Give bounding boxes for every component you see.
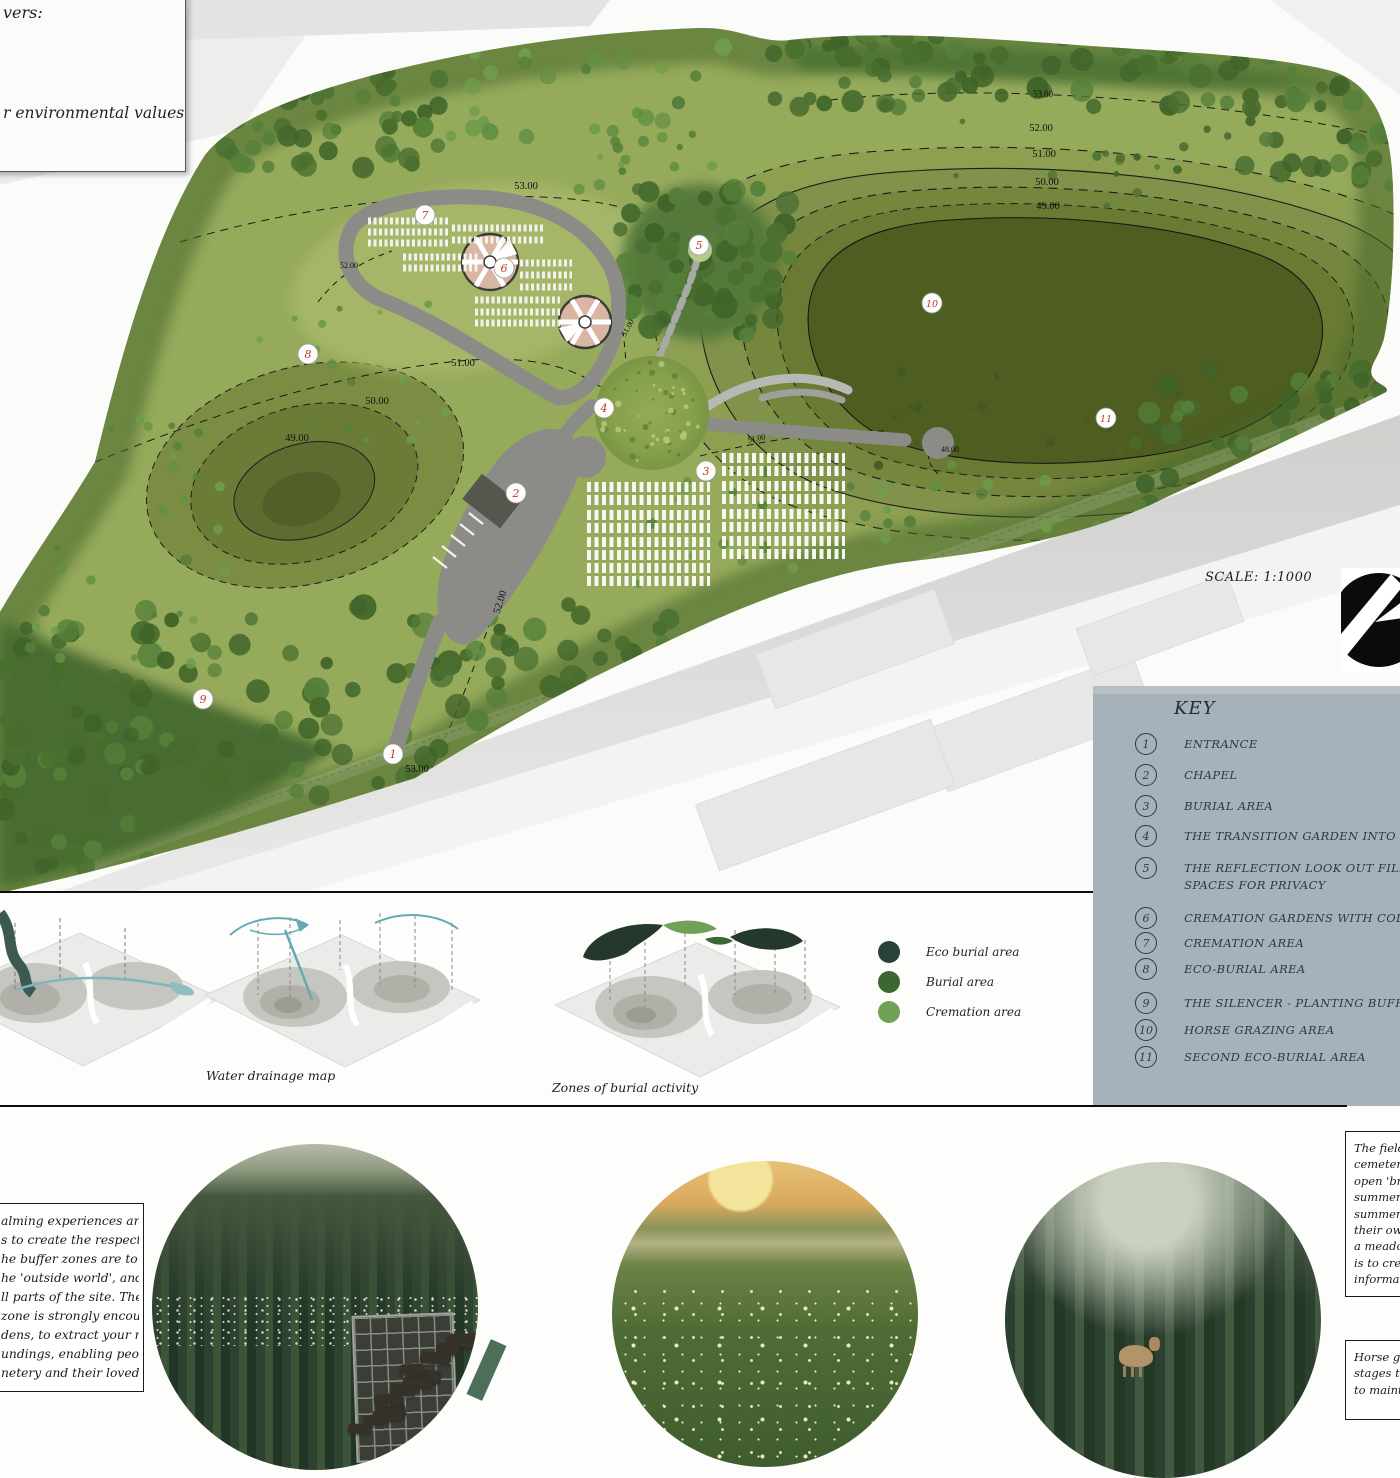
tree bbox=[668, 188, 685, 205]
tree bbox=[1156, 375, 1177, 396]
tree bbox=[173, 441, 182, 450]
tree bbox=[860, 510, 871, 521]
key-item-number: 10 bbox=[1135, 1019, 1157, 1041]
tree bbox=[309, 697, 330, 718]
tree bbox=[1137, 54, 1158, 75]
tree bbox=[589, 124, 600, 135]
tree bbox=[245, 612, 258, 625]
tree bbox=[445, 694, 470, 719]
tree bbox=[1070, 79, 1093, 102]
tree bbox=[1129, 437, 1141, 449]
tree bbox=[135, 600, 157, 622]
tree bbox=[151, 612, 157, 618]
tree bbox=[1242, 88, 1259, 105]
key-item: 6 CREMATION GARDENS WITH COLUMBAR bbox=[1135, 907, 1400, 929]
zones-legend: Eco burial area Burial area Cremation ar… bbox=[878, 941, 1021, 1031]
tree bbox=[220, 566, 230, 576]
tree bbox=[1203, 126, 1210, 133]
tree bbox=[1353, 372, 1369, 388]
tree bbox=[15, 832, 28, 845]
tree bbox=[1224, 132, 1231, 139]
tree bbox=[139, 623, 160, 644]
tree bbox=[352, 157, 374, 179]
text-fragment: a meadow bbox=[1354, 1238, 1400, 1254]
garden-dot bbox=[625, 378, 628, 381]
divider-line-bottom bbox=[0, 1105, 1347, 1107]
contour-label: 48.00 bbox=[941, 445, 959, 454]
tree bbox=[1320, 404, 1335, 419]
garden-dot bbox=[638, 456, 640, 458]
key-panel: KEY 1 ENTRANCE 2 CHAPEL bbox=[1093, 686, 1400, 1106]
tree bbox=[1316, 82, 1328, 94]
tree bbox=[1235, 156, 1254, 175]
key-item-number: 3 bbox=[1135, 795, 1157, 817]
tree bbox=[464, 78, 481, 95]
tree bbox=[56, 563, 66, 573]
marker-number: 6 bbox=[501, 262, 508, 275]
tree bbox=[259, 724, 279, 744]
marker-number: 11 bbox=[1100, 414, 1112, 425]
text-fragment: their own bbox=[1354, 1222, 1400, 1238]
tree bbox=[657, 132, 668, 143]
tree bbox=[53, 767, 67, 781]
tree bbox=[282, 645, 299, 662]
tree bbox=[884, 481, 891, 488]
tree bbox=[613, 143, 624, 154]
diagram-water-drainage-axon bbox=[190, 895, 490, 1080]
garden-dot bbox=[672, 373, 678, 379]
tree bbox=[485, 657, 506, 678]
tree bbox=[973, 52, 985, 64]
garden-dot bbox=[643, 424, 649, 430]
tree bbox=[1133, 188, 1143, 198]
marker-number: 3 bbox=[703, 465, 710, 478]
tree bbox=[655, 60, 669, 74]
tree bbox=[945, 40, 964, 59]
tree bbox=[56, 619, 79, 642]
tree bbox=[822, 40, 834, 52]
tree bbox=[966, 518, 973, 525]
tree bbox=[131, 654, 138, 661]
key-item-number: 1 bbox=[1135, 733, 1157, 755]
garden-dot bbox=[667, 431, 669, 433]
tree bbox=[466, 641, 486, 661]
tree bbox=[1039, 475, 1051, 487]
tree bbox=[51, 627, 59, 635]
tree bbox=[371, 776, 385, 790]
tree bbox=[847, 483, 855, 491]
text-fragment: summer se bbox=[1354, 1189, 1400, 1205]
tree bbox=[652, 621, 667, 636]
tree bbox=[874, 461, 883, 470]
key-item-label: HORSE GRAZING AREA bbox=[1184, 1019, 1335, 1037]
tree bbox=[960, 119, 966, 125]
tree bbox=[632, 183, 644, 195]
text-fragment: undings, enabling people bbox=[1, 1345, 139, 1364]
tree bbox=[194, 428, 203, 437]
key-item: 10 HORSE GRAZING AREA bbox=[1135, 1019, 1335, 1041]
map-marker: 4 bbox=[594, 398, 614, 418]
key-item-label: THE REFLECTION LOOK OUT FILLED WIT SPACE… bbox=[1184, 857, 1400, 892]
key-item-number: 5 bbox=[1135, 857, 1157, 879]
tree bbox=[309, 785, 330, 806]
tree bbox=[486, 687, 507, 708]
tree bbox=[319, 142, 338, 161]
tree bbox=[20, 622, 33, 635]
contour-label: 52.00 bbox=[1029, 123, 1053, 134]
text-fragment: he buffer zones are to bbox=[1, 1250, 139, 1269]
tree bbox=[618, 167, 626, 175]
tree bbox=[1290, 372, 1309, 391]
garden-dot bbox=[666, 439, 670, 443]
garden-dot bbox=[649, 370, 655, 376]
tree bbox=[803, 92, 816, 105]
marker-number: 7 bbox=[422, 209, 429, 222]
tree bbox=[976, 488, 988, 500]
tree bbox=[430, 70, 448, 88]
garden-dot bbox=[665, 412, 667, 414]
key-item-line1: BURIAL AREA bbox=[1184, 799, 1273, 813]
legend-color-dot bbox=[878, 1001, 900, 1023]
legend-row: Eco burial area bbox=[878, 941, 1021, 963]
contour-label: 51.00 bbox=[1032, 149, 1056, 160]
tree bbox=[876, 94, 895, 113]
tree bbox=[1259, 132, 1274, 147]
tree bbox=[1188, 64, 1212, 88]
tree bbox=[406, 435, 415, 444]
tree bbox=[167, 740, 190, 763]
tree bbox=[1116, 153, 1125, 162]
tree bbox=[1042, 56, 1061, 75]
tree bbox=[689, 131, 696, 138]
tree bbox=[375, 136, 397, 158]
legend-label: Burial area bbox=[926, 975, 994, 989]
caption-water-drainage: Water drainage map bbox=[206, 1068, 335, 1083]
tree bbox=[378, 310, 383, 315]
grave-stone bbox=[400, 1364, 424, 1376]
tree bbox=[990, 46, 1008, 64]
key-item-number: 11 bbox=[1135, 1046, 1157, 1068]
tree bbox=[469, 106, 480, 117]
marker-number: 10 bbox=[926, 299, 938, 310]
tree bbox=[1181, 401, 1194, 414]
text-fragment: he 'outside world', and bbox=[1, 1269, 139, 1288]
tree bbox=[465, 120, 482, 137]
tree bbox=[274, 118, 292, 136]
garden-dot bbox=[637, 371, 641, 375]
marker-number: 5 bbox=[696, 239, 703, 252]
legend-label: Eco burial area bbox=[926, 945, 1019, 959]
key-title: KEY bbox=[1174, 698, 1215, 719]
tree bbox=[765, 45, 782, 62]
tree bbox=[275, 711, 293, 729]
tree bbox=[1065, 387, 1072, 394]
tree bbox=[430, 664, 454, 688]
tree bbox=[690, 71, 701, 82]
tree bbox=[313, 425, 319, 431]
tree bbox=[208, 663, 222, 677]
garden-dot bbox=[679, 430, 681, 432]
tree bbox=[213, 525, 223, 535]
garden-dot bbox=[680, 433, 687, 440]
contour-label: 53.00 bbox=[405, 764, 429, 775]
tree bbox=[724, 220, 750, 246]
tree bbox=[723, 179, 746, 202]
presentation-board: 53.0052.0051.0050.0049.0052.0053.0053.00… bbox=[0, 0, 1400, 1400]
tree bbox=[345, 682, 361, 698]
tree bbox=[483, 123, 493, 133]
tree bbox=[337, 306, 343, 312]
tree bbox=[644, 223, 664, 243]
tree bbox=[897, 368, 907, 378]
garden-dot bbox=[696, 425, 700, 429]
tree bbox=[441, 407, 450, 416]
tree bbox=[1116, 449, 1125, 458]
caption-burial-zones: Zones of burial activity bbox=[552, 1080, 698, 1095]
tree bbox=[728, 269, 744, 285]
tree bbox=[382, 119, 398, 135]
tree bbox=[133, 680, 147, 694]
tree bbox=[677, 144, 683, 150]
tree bbox=[593, 651, 608, 666]
intro-fragment-2: r environmental values bbox=[3, 104, 179, 122]
map-marker: 11 bbox=[1096, 408, 1116, 428]
tree bbox=[51, 834, 67, 850]
tree bbox=[157, 651, 175, 669]
divider-line-top bbox=[0, 891, 1093, 893]
text-fragment: to maintai bbox=[1354, 1382, 1400, 1398]
tree bbox=[698, 191, 712, 205]
text-fragment: ll parts of the site. The bbox=[1, 1288, 139, 1307]
tree bbox=[54, 545, 61, 552]
key-item-number: 9 bbox=[1135, 992, 1157, 1014]
tree bbox=[347, 378, 355, 386]
text-fragment: cemetery, bbox=[1354, 1156, 1400, 1172]
tree bbox=[64, 734, 81, 751]
garden-dot bbox=[636, 459, 639, 462]
tree bbox=[655, 113, 671, 129]
tree bbox=[288, 761, 305, 778]
tree bbox=[912, 89, 925, 102]
tree bbox=[1301, 156, 1322, 177]
tree bbox=[483, 65, 498, 80]
garden-dot bbox=[682, 392, 685, 395]
key-item-line1: HORSE GRAZING AREA bbox=[1184, 1023, 1335, 1037]
garden-dot bbox=[648, 360, 652, 364]
tree bbox=[762, 308, 783, 329]
tree bbox=[229, 634, 251, 656]
tree bbox=[246, 679, 270, 703]
tree bbox=[231, 154, 250, 173]
tree bbox=[34, 858, 50, 874]
tree bbox=[215, 482, 225, 492]
key-item-line1: CREMATION GARDENS WITH COLUMBAR bbox=[1184, 911, 1400, 925]
tree bbox=[519, 129, 534, 144]
tree bbox=[971, 64, 994, 87]
tree bbox=[262, 161, 274, 173]
text-fragment: summer w bbox=[1354, 1206, 1400, 1222]
key-item: 1 ENTRANCE bbox=[1135, 733, 1258, 755]
tree bbox=[983, 479, 993, 489]
garden-dot bbox=[650, 442, 654, 446]
tree bbox=[1133, 153, 1140, 160]
contour-label: 53.00 bbox=[1033, 89, 1054, 99]
text-fragment: s to create the respectful bbox=[1, 1231, 139, 1250]
garden-dot bbox=[659, 361, 665, 367]
contour-label: 49.00 bbox=[285, 433, 309, 444]
garden-dot bbox=[686, 422, 691, 427]
tree bbox=[316, 110, 327, 121]
key-item-number: 2 bbox=[1135, 764, 1157, 786]
tree bbox=[750, 181, 766, 197]
marker-number: 1 bbox=[390, 748, 397, 761]
garden-dot bbox=[615, 427, 621, 433]
tree bbox=[314, 739, 331, 756]
text-fragment: dens, to extract your mind bbox=[1, 1326, 139, 1345]
tree bbox=[169, 454, 176, 461]
contour-label: 50.00 bbox=[365, 396, 389, 407]
tree bbox=[55, 653, 65, 663]
tree bbox=[106, 721, 119, 734]
diagram-burial-zones-axon bbox=[535, 895, 855, 1095]
photo-horse-in-forest bbox=[1005, 1162, 1321, 1478]
key-item: 9 THE SILENCER - PLANTING BUFFER bbox=[1135, 992, 1400, 1014]
key-item-line2: SPACES FOR PRIVACY bbox=[1184, 878, 1400, 892]
key-item-line1: THE REFLECTION LOOK OUT FILLED WIT bbox=[1184, 861, 1400, 875]
tree bbox=[108, 426, 114, 432]
garden-dot bbox=[663, 390, 668, 395]
tree bbox=[615, 636, 630, 651]
map-marker: 5 bbox=[689, 235, 709, 255]
tree bbox=[177, 611, 183, 617]
contour-label: 52.00 bbox=[340, 261, 358, 270]
tree bbox=[45, 708, 63, 726]
tree bbox=[523, 618, 546, 641]
tree bbox=[739, 328, 754, 343]
key-item-label: SECOND ECO-BURIAL AREA bbox=[1184, 1046, 1366, 1064]
columbarium-2 bbox=[559, 296, 611, 348]
tree bbox=[167, 462, 179, 474]
tree bbox=[945, 78, 962, 95]
tree bbox=[788, 563, 799, 574]
tree bbox=[252, 121, 263, 132]
map-marker: 1 bbox=[383, 744, 403, 764]
text-fragment: alming experiences are bbox=[1, 1212, 139, 1231]
garden-dot bbox=[677, 453, 680, 456]
key-item-number: 8 bbox=[1135, 958, 1157, 980]
tree bbox=[880, 533, 891, 544]
tree bbox=[1114, 171, 1120, 177]
garden-dot bbox=[671, 392, 674, 395]
garden-dot bbox=[653, 384, 656, 387]
garden-dot bbox=[659, 388, 662, 391]
tree bbox=[597, 629, 611, 643]
field-text-box: The field iscemetery,open 'breasummer se… bbox=[1345, 1131, 1400, 1297]
tree bbox=[206, 766, 228, 788]
tree bbox=[415, 419, 420, 424]
scale-label: SCALE: 1:1000 bbox=[1205, 570, 1312, 585]
legend-color-dot bbox=[878, 971, 900, 993]
tree bbox=[1052, 514, 1060, 522]
tree bbox=[1092, 152, 1101, 161]
key-item-label: THE SILENCER - PLANTING BUFFER bbox=[1184, 992, 1400, 1010]
key-item-line1: ENTRANCE bbox=[1184, 737, 1258, 751]
tree bbox=[1271, 407, 1291, 427]
tree bbox=[930, 481, 940, 491]
tree bbox=[923, 362, 930, 369]
tree bbox=[294, 129, 313, 148]
tree bbox=[656, 294, 669, 307]
garden-dot bbox=[630, 453, 636, 459]
tree bbox=[193, 473, 201, 481]
garden-dot bbox=[652, 399, 654, 401]
tree bbox=[1235, 435, 1250, 450]
tree bbox=[186, 658, 197, 669]
tree bbox=[84, 714, 103, 733]
tree bbox=[180, 554, 192, 566]
text-fragment: zone is strongly encouraged bbox=[1, 1307, 139, 1326]
key-item-line1: THE TRANSITION GARDEN INTO THE FIE bbox=[1184, 829, 1400, 843]
garden-dot bbox=[656, 438, 659, 441]
tree bbox=[816, 96, 832, 112]
tree bbox=[351, 594, 377, 620]
tree bbox=[1270, 161, 1292, 183]
text-fragment: The field is bbox=[1354, 1140, 1400, 1156]
key-item-line1: THE SILENCER - PLANTING BUFFER bbox=[1184, 996, 1400, 1010]
tree bbox=[404, 156, 419, 171]
tree bbox=[1353, 139, 1369, 155]
tree bbox=[327, 359, 337, 369]
legend-label: Cremation area bbox=[926, 1005, 1021, 1019]
tree bbox=[158, 506, 167, 515]
map-marker: 3 bbox=[696, 461, 716, 481]
tree bbox=[88, 789, 110, 811]
tree bbox=[1102, 150, 1109, 157]
tree bbox=[1175, 392, 1181, 398]
contour-label: 49.00 bbox=[1036, 201, 1060, 212]
tree bbox=[60, 676, 80, 696]
key-item-label: CREMATION AREA bbox=[1184, 932, 1304, 950]
tree bbox=[607, 125, 619, 137]
tree bbox=[1138, 402, 1160, 424]
tree bbox=[263, 132, 276, 145]
marker-number: 9 bbox=[200, 693, 207, 706]
tree bbox=[400, 378, 407, 385]
tree bbox=[140, 760, 156, 776]
tree bbox=[71, 705, 84, 718]
intro-fragment-1: vers: bbox=[3, 3, 179, 22]
tree bbox=[740, 261, 753, 274]
text-fragment: open 'brea bbox=[1354, 1173, 1400, 1189]
tree bbox=[953, 173, 959, 179]
key-item-label: THE TRANSITION GARDEN INTO THE FIE bbox=[1184, 825, 1400, 843]
tree bbox=[259, 763, 276, 780]
garden-dot bbox=[668, 450, 671, 453]
grave-stone bbox=[348, 1423, 372, 1435]
tree bbox=[616, 54, 631, 69]
tree bbox=[1160, 468, 1179, 487]
tree bbox=[947, 460, 956, 469]
text-fragment: netery and their loved bbox=[1, 1364, 139, 1383]
tree bbox=[914, 441, 919, 446]
tree bbox=[571, 606, 590, 625]
garden-dot bbox=[668, 408, 673, 413]
contour-label: 53.00 bbox=[514, 181, 538, 192]
key-item: 8 ECO-BURIAL AREA bbox=[1135, 958, 1306, 980]
tree bbox=[866, 62, 881, 77]
tree bbox=[749, 285, 767, 303]
tree bbox=[995, 89, 1009, 103]
